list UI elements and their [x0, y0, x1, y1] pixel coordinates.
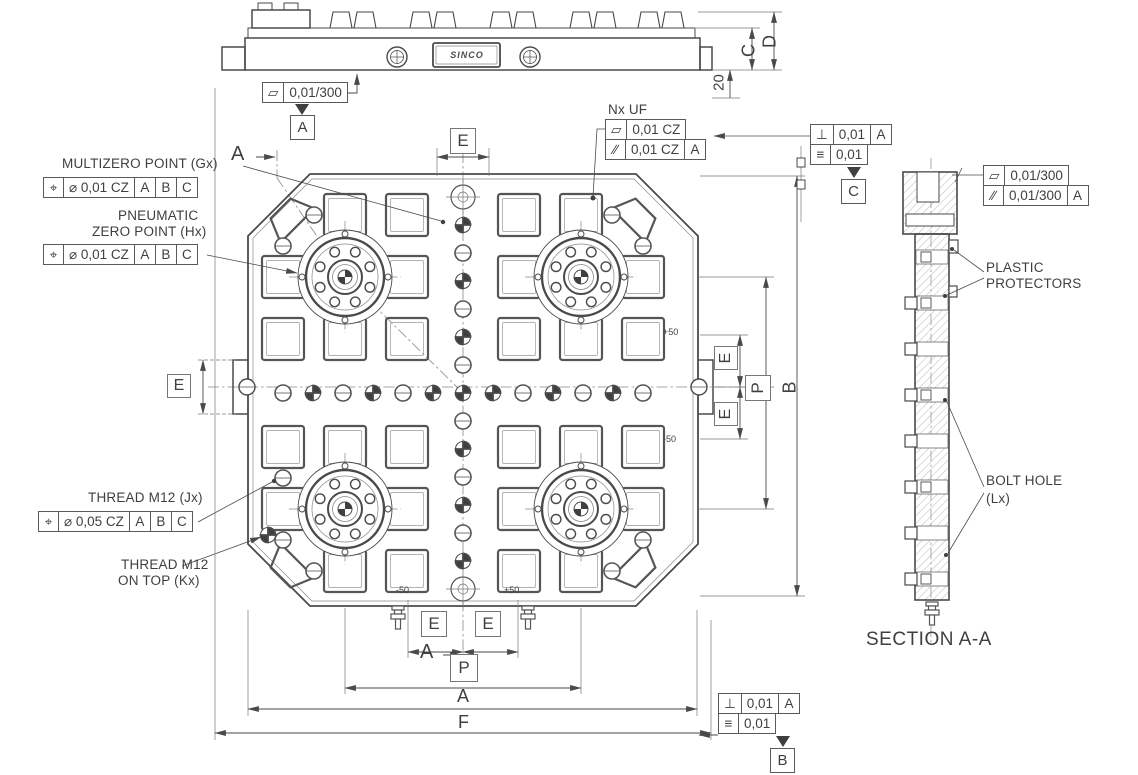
bolt-hole-label-line2: (Lx) [986, 492, 1010, 507]
section-view [903, 158, 984, 645]
multizero-label: MULTIZERO POINT (Gx) [62, 157, 218, 172]
dim-f: F [458, 712, 469, 733]
c-datum-leader [714, 136, 810, 222]
flatness-icon: ▱ [262, 82, 284, 103]
symmetry-icon: ≡ [718, 713, 739, 734]
nx-uf-label: Nx UF [608, 103, 647, 118]
gdt-frame-bottom-symmetry: ≡ 0,01 [718, 713, 776, 734]
datum-a-triangle [295, 104, 309, 115]
dim-a: A [457, 686, 469, 707]
datum-flag-b: B [770, 748, 795, 773]
thread-k-label-line2: ON TOP (Kx) [118, 574, 200, 589]
gdt-frame-section-flatness: ▱ 0,01/300 [983, 165, 1069, 186]
gdt-frame-nxuf-flatness: ▱ 0,01 CZ [605, 119, 686, 140]
coord-plus50-right: +50 [663, 327, 678, 337]
air-fitting [391, 606, 405, 629]
cut-label-top: A [231, 143, 244, 166]
gdt-frame-right-perpendicularity: ⊥ 0,01 A [810, 124, 892, 145]
dim-p-right: P [745, 375, 771, 401]
gdt-frame-multizero: ⌖ ⌀ 0,01 CZ A B C [43, 177, 198, 198]
position-icon: ⌖ [43, 177, 64, 198]
section-title: SECTION A-A [866, 630, 992, 651]
plastic-protectors-label-line1: PLASTIC [986, 261, 1044, 276]
front-view [182, 88, 861, 747]
dim-e-right-upper: E [714, 346, 738, 370]
flatness-icon: ▱ [983, 165, 1005, 186]
dimension-lines [203, 157, 797, 733]
dim-c: C [739, 41, 760, 61]
parallelism-icon: ∕∕ [983, 185, 1004, 206]
pneumatic-label-line2: ZERO POINT (Hx) [92, 225, 207, 240]
gdt-frame-bottom-perpendicularity: ⊥ 0,01 A [718, 693, 800, 714]
gdt-frame-thread-j: ⌖ ⌀ 0,05 CZ A B C [38, 511, 193, 532]
thread-k-label-line1: THREAD M12 [121, 558, 209, 573]
pneumatic-label-line1: PNEUMATIC [118, 209, 198, 224]
dim-20: 20 [711, 69, 728, 97]
gdt-frame-top-flatness: ▱ 0,01/300 [262, 82, 348, 103]
cut-label-bottom: A [420, 641, 433, 664]
air-fitting [925, 602, 939, 625]
dim-e-bottom-left: E [421, 611, 447, 637]
perpendicularity-icon: ⊥ [718, 693, 742, 714]
gdt-frame-right-symmetry: ≡ 0,01 [810, 144, 868, 165]
dim-b: B [780, 376, 801, 400]
zero-point-chuck [289, 221, 401, 333]
datum-c-triangle [847, 167, 861, 178]
plastic-protectors-label-line2: PROTECTORS [986, 277, 1082, 292]
dim-p-bottom: P [450, 654, 478, 682]
brand-logo: SINCO [441, 50, 493, 60]
gdt-frame-section-parallelism: ∕∕ 0,01/300 A [983, 185, 1089, 206]
zero-point-chuck [525, 453, 637, 565]
air-fitting [521, 606, 535, 629]
dim-d: D [760, 32, 781, 52]
clamp-modules [330, 12, 684, 28]
dim-e-bottom-right: E [475, 611, 501, 637]
gdt-frame-pneumatic: ⌖ ⌀ 0,01 CZ A B C [43, 244, 198, 265]
dim-e-top: E [450, 128, 476, 154]
zero-point-chuck [525, 221, 637, 333]
position-icon: ⌖ [43, 244, 64, 265]
coord-minus50-bottom: -50 [396, 585, 409, 595]
thread-j-label: THREAD M12 (Jx) [88, 491, 203, 506]
zero-point-chuck [289, 453, 401, 565]
flatness-icon: ▱ [605, 119, 627, 140]
dim-e-left: E [167, 374, 191, 398]
bolt-hole-label-line1: BOLT HOLE [986, 474, 1062, 489]
datum-flag-a: A [290, 115, 315, 140]
dim-e-right-lower: E [714, 402, 738, 426]
datum-flag-c: C [841, 179, 866, 204]
gdt-frame-nxuf-parallelism: ∕∕ 0,01 CZ A [605, 139, 706, 160]
coord-plus50-bottom: +50 [504, 585, 519, 595]
position-icon: ⌖ [38, 511, 59, 532]
coord-minus50-right: -50 [663, 434, 676, 444]
parallelism-icon: ∕∕ [605, 139, 626, 160]
centerlines [208, 150, 758, 660]
perpendicularity-icon: ⊥ [810, 124, 834, 145]
technical-drawing-canvas: ▱ 0,01/300 A C D 20 SINCO MULTIZERO POIN… [0, 0, 1138, 775]
symmetry-icon: ≡ [810, 144, 831, 165]
datum-b-triangle [776, 736, 790, 747]
